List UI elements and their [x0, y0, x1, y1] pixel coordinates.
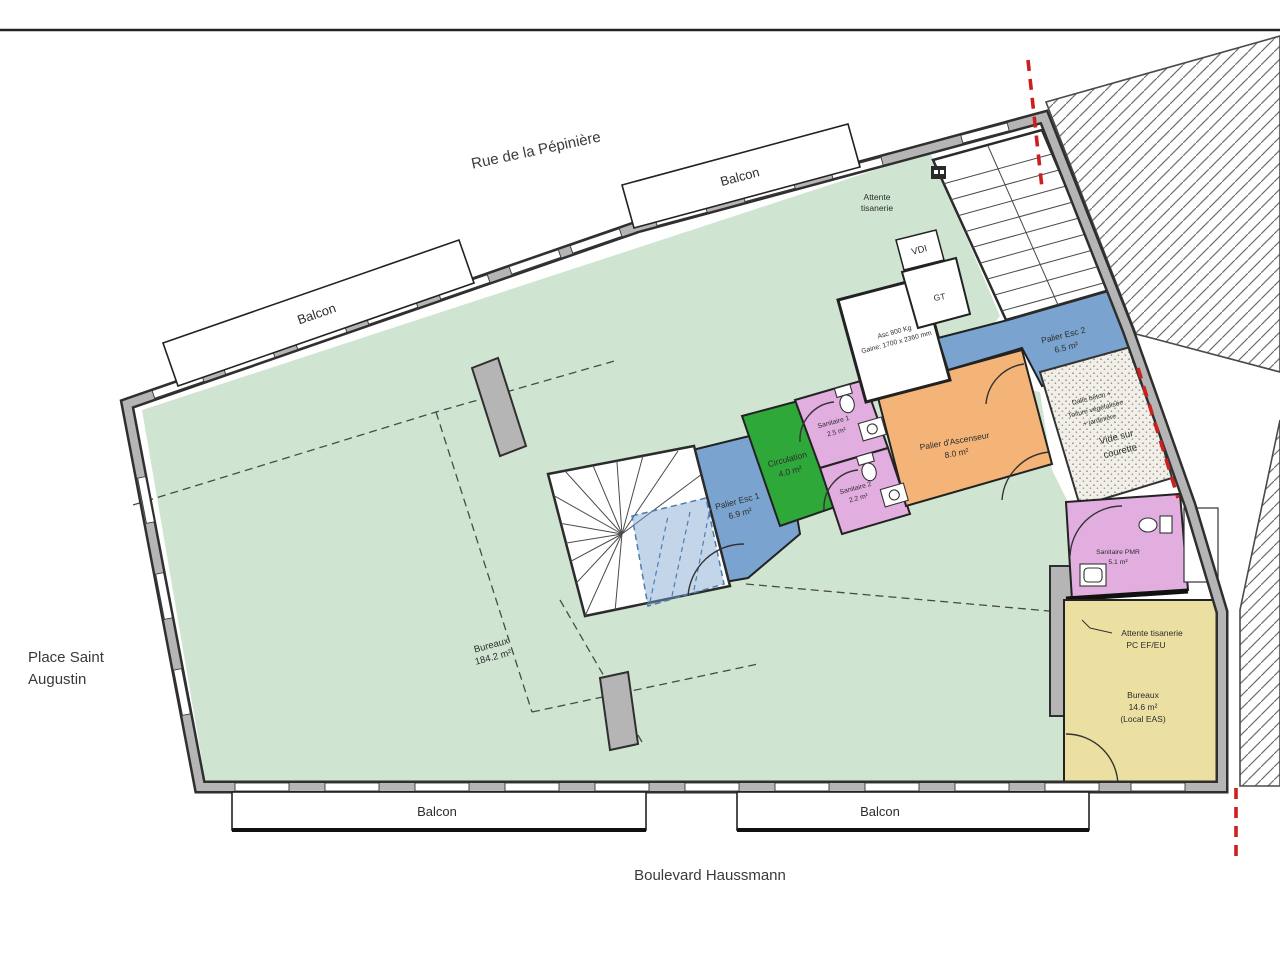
- adjacent-building-hatch-bottom-right: [1240, 420, 1280, 786]
- street-place-saint-augustin-2: Augustin: [28, 671, 86, 688]
- label-bureaux-eas-area: 14.6 m²: [1129, 702, 1158, 712]
- street-place-saint-augustin-1: Place Saint: [28, 649, 105, 666]
- label-sanitaire-pmr: Sanitaire PMR: [1096, 549, 1140, 556]
- balcony-label: Balcon: [417, 804, 457, 819]
- label-sanitaire-pmr-area: 5.1 m²: [1108, 559, 1128, 566]
- balcony-bottom-left: Balcon: [232, 792, 646, 830]
- label-bureaux-eas: Bureaux: [1127, 690, 1159, 700]
- street-boulevard-haussmann: Boulevard Haussmann: [634, 867, 786, 884]
- label-attente-tisanerie-2: tisanerie: [861, 203, 893, 213]
- street-rue-de-la-pepiniere: Rue de la Pépinière: [470, 129, 602, 173]
- label-bureaux-eas-note: (Local EAS): [1120, 714, 1166, 724]
- balcony-label: Balcon: [860, 804, 900, 819]
- floor-plan-drawing: Balcon Balcon Balcon Balcon Bureaux 184.…: [0, 0, 1280, 960]
- courette-void: [1040, 346, 1172, 506]
- label-attente-tisanerie-1: Attente: [864, 192, 891, 202]
- floor-plan-page: Balcon Balcon Balcon Balcon Bureaux 184.…: [0, 0, 1280, 960]
- washbasin-icon: [1080, 564, 1106, 586]
- label-attente-note-2: PC EF/EU: [1126, 640, 1165, 650]
- label-gt: GT: [933, 291, 946, 303]
- balcony-bottom-right: Balcon: [737, 792, 1089, 830]
- label-attente-note-1: Attente tisanerie: [1121, 628, 1183, 638]
